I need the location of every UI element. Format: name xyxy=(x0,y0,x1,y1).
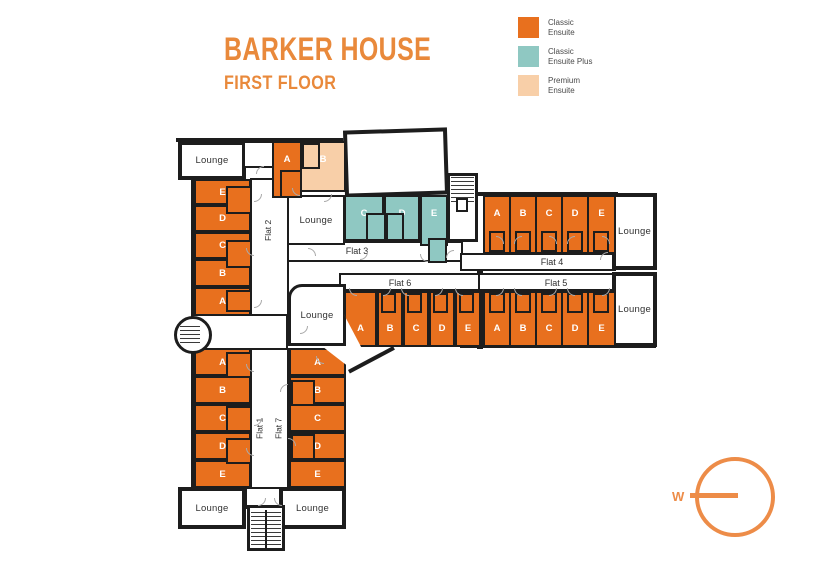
room-label: B xyxy=(320,154,327,165)
ensuite-partition xyxy=(226,290,252,312)
legend-label-line: Classic xyxy=(548,47,574,56)
flat5-corridor-label: Flat 5 xyxy=(528,276,584,289)
room-label: C xyxy=(314,413,321,424)
stair-rail xyxy=(265,510,267,548)
legend-item-classic-ensuite-plus: ClassicEnsuite Plus xyxy=(518,46,592,67)
room-label: B xyxy=(314,385,321,396)
premium-ensuite-swatch xyxy=(518,75,539,96)
legend: ClassicEnsuite ClassicEnsuite Plus Premi… xyxy=(518,17,592,104)
room-label: B xyxy=(387,323,394,334)
ensuite-partition xyxy=(291,434,315,460)
legend-label-line: Classic xyxy=(548,18,574,27)
lounge-label: Lounge xyxy=(296,503,329,514)
lounge-label: Lounge xyxy=(196,155,229,166)
flat1-room-b: B xyxy=(194,376,251,404)
ensuite-partition xyxy=(433,293,448,313)
legend-item-label: PremiumEnsuite xyxy=(548,76,580,96)
room-label: A xyxy=(219,296,226,307)
room-label: E xyxy=(314,469,320,480)
flat4-corridor-label: Flat 4 xyxy=(524,255,580,268)
ensuite-partition xyxy=(302,143,320,169)
lounge-label: Lounge xyxy=(618,226,651,237)
room-label: E xyxy=(465,323,471,334)
room-label: A xyxy=(494,208,501,219)
stair-treads xyxy=(180,326,200,344)
ensuite-partition xyxy=(386,213,404,241)
room-label: D xyxy=(219,213,226,224)
communal-room xyxy=(343,127,449,197)
lounge-right-top: Lounge xyxy=(612,193,657,270)
room-label: C xyxy=(219,413,226,424)
classic-ensuite-swatch xyxy=(518,17,539,38)
compass-needle xyxy=(690,493,738,498)
legend-item-premium-ensuite: PremiumEnsuite xyxy=(518,75,592,96)
floor-plan-page: BARKER HOUSE FIRST FLOOR ClassicEnsuite … xyxy=(0,0,828,586)
ensuite-partition xyxy=(459,293,474,313)
flat6-room-a: A xyxy=(344,291,377,347)
lounge-middle: Lounge xyxy=(288,284,346,346)
room-label: B xyxy=(219,385,226,396)
room-label: C xyxy=(546,208,553,219)
flat6-corridor-label: Flat 6 xyxy=(374,276,426,289)
room-label: D xyxy=(314,441,321,452)
room-label: A xyxy=(219,357,226,368)
legend-item-classic-ensuite: ClassicEnsuite xyxy=(518,17,592,38)
ensuite-partition xyxy=(381,293,396,313)
room-label: C xyxy=(546,323,553,334)
flat2-corridor-label: Flat 2 xyxy=(252,202,284,258)
flat1-room-e: E xyxy=(194,460,251,488)
lounge-label: Lounge xyxy=(618,304,651,315)
lounge-label: Lounge xyxy=(300,215,333,226)
flat7-room-e: E xyxy=(289,460,346,488)
ensuite-partition xyxy=(567,293,583,313)
room-label: B xyxy=(219,268,226,279)
lounge-bottom-left: Lounge xyxy=(178,487,246,529)
room-label: D xyxy=(572,208,579,219)
legend-label-line: Ensuite xyxy=(548,86,575,95)
ensuite-partition xyxy=(515,293,531,313)
legend-label-line: Ensuite xyxy=(548,28,575,37)
ensuite-partition xyxy=(226,186,252,214)
classic-ensuite-plus-swatch xyxy=(518,46,539,67)
legend-item-label: ClassicEnsuite Plus xyxy=(548,47,592,67)
room-label: B xyxy=(520,208,527,219)
ensuite-partition xyxy=(366,213,386,241)
ensuite-partition xyxy=(226,406,252,432)
legend-label-line: Premium xyxy=(548,76,580,85)
page-title: BARKER HOUSE xyxy=(224,33,431,65)
room-label: A xyxy=(494,323,501,334)
lounge-label: Lounge xyxy=(301,310,334,321)
room-label: D xyxy=(572,323,579,334)
room-label: C xyxy=(219,240,226,251)
ensuite-partition xyxy=(428,238,447,263)
flat7-corridor-label: Flat 7 xyxy=(269,398,288,458)
compass-west-label: W xyxy=(672,489,684,504)
ensuite-partition xyxy=(291,380,315,406)
room-label: E xyxy=(219,469,225,480)
room-label: A xyxy=(357,323,364,334)
room-label: A xyxy=(284,154,291,165)
room-label: B xyxy=(520,323,527,334)
room-label: D xyxy=(439,323,446,334)
room-label: E xyxy=(431,208,437,219)
ensuite-partition xyxy=(541,293,557,313)
utility-room xyxy=(243,141,274,168)
ensuite-partition xyxy=(593,293,609,313)
lounge-top-left: Lounge xyxy=(178,141,246,180)
room-label: E xyxy=(598,208,604,219)
legend-item-label: ClassicEnsuite xyxy=(548,18,575,38)
page-subtitle: FIRST FLOOR xyxy=(224,74,336,93)
flat7-room-a: A xyxy=(289,348,346,376)
room-label: E xyxy=(598,323,604,334)
wall-segment-diagonal xyxy=(348,346,395,373)
ensuite-partition xyxy=(489,293,505,313)
room-label: D xyxy=(219,441,226,452)
lounge-label: Lounge xyxy=(196,503,229,514)
lounge-flat3: Lounge xyxy=(287,195,345,245)
lounge-bottom-right: Lounge xyxy=(279,487,346,529)
room-label: C xyxy=(413,323,420,334)
ensuite-partition xyxy=(407,293,422,313)
flat3-corridor-label: Flat 3 xyxy=(330,244,384,258)
stair-landing xyxy=(456,198,468,212)
flat7-room-c: C xyxy=(289,404,346,432)
lounge-right-bottom: Lounge xyxy=(612,272,657,347)
legend-label-line: Ensuite Plus xyxy=(548,57,592,66)
room-label: E xyxy=(219,187,225,198)
